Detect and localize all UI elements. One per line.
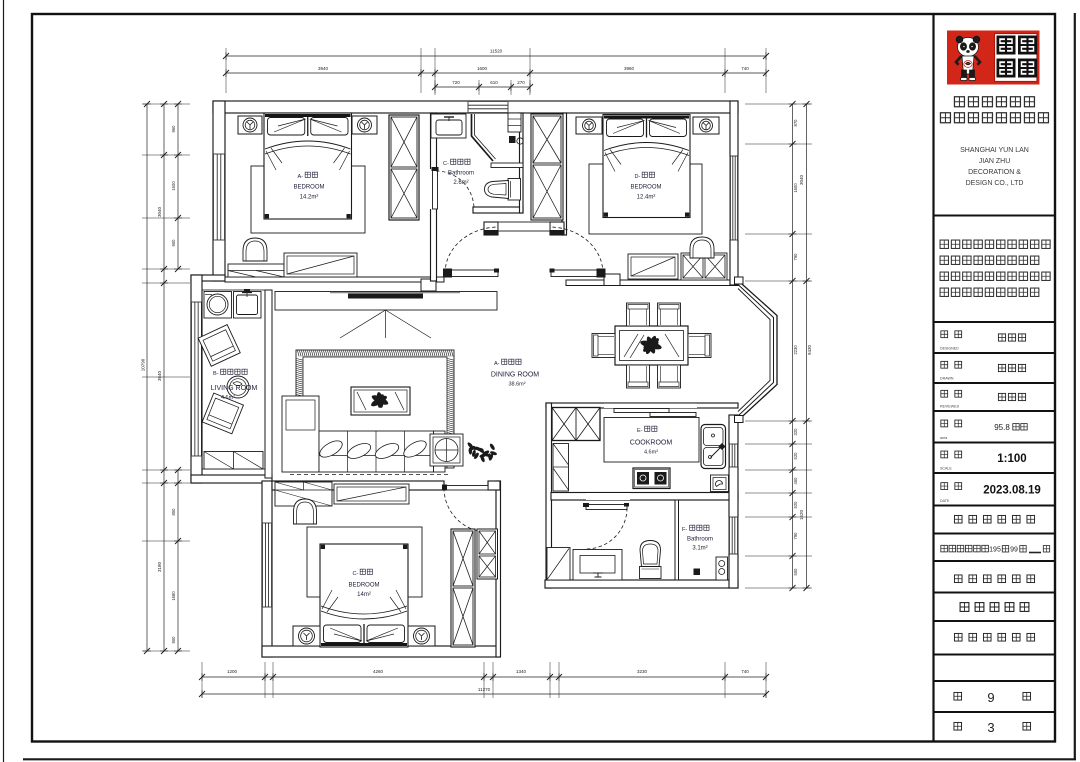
svg-text:790: 790 [793, 253, 798, 261]
svg-text:Bathroom: Bathroom [448, 171, 474, 177]
svg-text:JIAN ZHU: JIAN ZHU [979, 158, 1011, 165]
svg-text:195: 195 [989, 547, 1001, 554]
svg-text:A-: A- [298, 174, 304, 180]
svg-text:450: 450 [793, 477, 798, 485]
svg-text:900: 900 [171, 636, 176, 644]
svg-text:3960: 3960 [624, 66, 635, 71]
svg-text:3180: 3180 [157, 561, 162, 572]
svg-text:4260: 4260 [373, 669, 384, 674]
svg-text:12.4m²: 12.4m² [637, 195, 656, 201]
svg-text:10790: 10790 [141, 358, 146, 371]
svg-text:3.1m²: 3.1m² [692, 546, 707, 552]
svg-text:1600: 1600 [793, 183, 798, 193]
svg-text:14m²: 14m² [357, 592, 371, 598]
svg-text:1340: 1340 [516, 669, 527, 674]
svg-text:720: 720 [452, 80, 460, 85]
svg-text:DRAWN: DRAWN [940, 377, 954, 381]
svg-text:4.6m²: 4.6m² [221, 395, 235, 401]
svg-text:F-: F- [682, 527, 687, 533]
svg-text:2230: 2230 [793, 345, 798, 355]
svg-text:270: 270 [517, 80, 525, 85]
svg-text:BEDROOM: BEDROOM [348, 583, 379, 589]
svg-text:520: 520 [793, 452, 798, 460]
svg-text:3640: 3640 [157, 370, 162, 381]
svg-text:1200: 1200 [227, 669, 238, 674]
svg-text:3940: 3940 [318, 66, 329, 71]
svg-text:4.6m²: 4.6m² [644, 450, 658, 456]
svg-text:A-: A- [494, 361, 500, 367]
svg-text:38.6m²: 38.6m² [508, 382, 525, 388]
svg-text:1520: 1520 [799, 509, 804, 520]
svg-text:11270: 11270 [478, 687, 491, 692]
svg-text:REVIEWED: REVIEWED [940, 405, 960, 409]
svg-text:95.8: 95.8 [994, 423, 1010, 432]
svg-text:COOKROOM: COOKROOM [630, 440, 673, 447]
svg-text:DESIGNED: DESIGNED [940, 347, 959, 351]
svg-text:2023.08.19: 2023.08.19 [983, 484, 1041, 496]
svg-text:BEDROOM: BEDROOM [293, 185, 324, 191]
svg-text:Bathroom: Bathroom [687, 537, 713, 543]
svg-text:3040: 3040 [799, 174, 804, 185]
svg-text:B-: B- [213, 371, 219, 377]
svg-text:14.2m²: 14.2m² [300, 195, 319, 201]
svg-text:D-: D- [635, 174, 641, 180]
svg-text:1680: 1680 [171, 591, 176, 601]
svg-text:C-: C- [443, 161, 449, 167]
svg-text:11520: 11520 [490, 49, 503, 54]
svg-text:320: 320 [793, 428, 798, 436]
svg-text:2.6m²: 2.6m² [453, 180, 468, 186]
svg-text:1600: 1600 [171, 181, 176, 191]
svg-text:3040: 3040 [157, 206, 162, 217]
svg-text:960: 960 [171, 125, 176, 133]
svg-text:BEDROOM: BEDROOM [630, 185, 661, 191]
svg-text:C-: C- [353, 571, 359, 577]
svg-text:99: 99 [1010, 547, 1018, 554]
svg-text:LIVING ROOM: LIVING ROOM [211, 385, 258, 392]
svg-text:3230: 3230 [637, 669, 648, 674]
svg-text:E-: E- [637, 428, 643, 434]
svg-text:SHANGHAI YUN LAN: SHANGHAI YUN LAN [960, 147, 1029, 154]
svg-text:520: 520 [793, 501, 798, 509]
svg-text:DATE: DATE [940, 499, 950, 503]
svg-text:1:100: 1:100 [997, 453, 1026, 465]
svg-text:740: 740 [741, 66, 749, 71]
svg-text:9: 9 [987, 690, 994, 705]
svg-text:area: area [940, 436, 947, 440]
svg-text:DINING ROOM: DINING ROOM [491, 372, 539, 379]
svg-text:740: 740 [741, 669, 749, 674]
svg-text:1600: 1600 [477, 66, 488, 71]
svg-text:850: 850 [171, 508, 176, 516]
svg-text:3: 3 [987, 720, 994, 735]
svg-text:790: 790 [793, 532, 798, 540]
svg-text:9430: 9430 [807, 344, 812, 355]
svg-text:610: 610 [490, 80, 498, 85]
svg-text:870: 870 [793, 119, 798, 127]
svg-text:SCALE: SCALE [940, 467, 952, 471]
svg-text:DECORATION &: DECORATION & [968, 169, 1021, 176]
svg-text:900: 900 [171, 239, 176, 247]
svg-text:500: 500 [793, 568, 798, 576]
svg-text:DESIGN CO., LTD: DESIGN CO., LTD [966, 180, 1024, 187]
